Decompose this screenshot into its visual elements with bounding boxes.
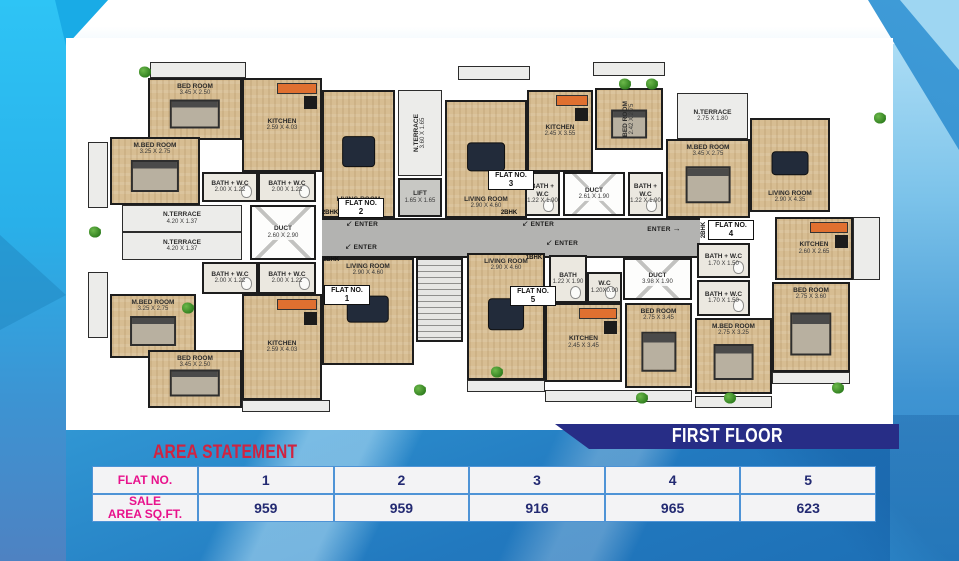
room-dims: 1.70 X 1.50	[708, 261, 739, 268]
room-name: BATH + W.C	[211, 271, 248, 278]
bhk-tag: 2BHK	[501, 210, 517, 216]
room-label: LIVING ROOM2.90 X 4.60	[324, 260, 412, 363]
enter-arrow-icon: ↙	[522, 220, 529, 228]
room-dims: 3.45 X 2.50	[180, 362, 211, 369]
room-duct: DUCT3.98 X 1.90	[623, 258, 692, 300]
room-name: KITCHEN	[546, 124, 575, 131]
room-name: BATH + W.C	[705, 253, 742, 260]
enter-text: ENTER	[647, 226, 671, 233]
room-n-terrace: N.TERRACE2.75 X 1.80	[677, 93, 748, 139]
flat-tag-number: 3	[489, 180, 533, 189]
room-dims: 2.42 X 2.75	[629, 104, 636, 135]
room-label: BATH + W.C1.70 X 1.50	[699, 282, 748, 314]
bhk-tag: 1BHK	[526, 255, 542, 261]
table-cell: 916	[469, 494, 605, 522]
page: BED ROOM3.45 X 2.50M.BED ROOM3.25 X 2.75…	[0, 0, 959, 561]
room-m-bed-room: M.BED ROOM2.75 X 3.25	[695, 318, 772, 394]
plant-icon	[832, 383, 844, 394]
flat-number-tag: FLAT NO.1	[324, 285, 370, 305]
room-name: W.C	[598, 280, 610, 287]
room-name: BED ROOM	[177, 355, 213, 362]
room-label: BATH + W.C2.00 X 1.22	[204, 264, 256, 292]
room-label: BED ROOM2.75 X 3.45	[627, 305, 690, 386]
room-balcony	[88, 272, 108, 338]
room-dims: 4.20 X 1.37	[167, 246, 198, 253]
enter-arrow-icon: ↙	[546, 239, 553, 247]
room-dims: 2.60 X 2.90	[267, 233, 300, 240]
room-label: DUCT2.61 X 1.90	[565, 174, 623, 214]
room-name: N.TERRACE	[413, 114, 420, 152]
room-dims: 3.25 X 2.75	[140, 149, 171, 156]
bhk-tag: 2BHK	[322, 210, 338, 216]
room-bath-w-c: BATH + W.C1.70 X 1.50	[697, 280, 750, 316]
bhk-tag: 2BHK	[323, 257, 339, 263]
room-bath-w-c: BATH + W.C2.00 X 1.22	[202, 172, 258, 202]
room-label: BED ROOM2.75 X 3.60	[774, 284, 848, 370]
room-dims: 2.75 X 3.45	[643, 315, 674, 322]
room-dims: 2.90 X 4.35	[775, 197, 806, 204]
flat-tag-number: 4	[709, 230, 753, 239]
enter-text: ENTER	[555, 240, 579, 247]
flat-number-tag: FLAT NO.4	[708, 220, 754, 240]
room-dims: 2.00 X 1.22	[215, 278, 246, 285]
room-name: BED ROOM	[622, 101, 629, 137]
floor-title: FIRST FLOOR	[671, 425, 782, 448]
enter-label: ↙ENTER	[522, 220, 554, 228]
enter-text: ENTER	[354, 244, 378, 251]
room-label: BATH1.22 X 1.90	[551, 257, 585, 301]
room-label: M.BED ROOM2.75 X 3.25	[697, 320, 770, 392]
room-living-room: LIVING ROOM2.90 X 4.60	[322, 258, 414, 365]
table-cell: 2	[334, 466, 470, 494]
room-dims: 2.59 X 4.03	[267, 347, 298, 354]
room-name: LIVING ROOM	[346, 263, 390, 270]
room-lift: LIFT1.65 X 1.65	[398, 178, 442, 217]
room-label: N.TERRACE4.20 X 1.37	[123, 233, 241, 259]
plant-icon	[414, 385, 426, 396]
room-n-terrace: N.TERRACE3.60 X 1.65	[398, 90, 442, 176]
plant-icon	[491, 367, 503, 378]
room-dims: 2.90 X 4.60	[491, 265, 522, 272]
room-duct: DUCT2.60 X 2.90	[250, 205, 316, 260]
room-name: LIFT	[413, 190, 427, 197]
room-balcony	[593, 62, 665, 76]
table-row-header: SALE AREA SQ.FT.	[92, 494, 198, 522]
plant-icon	[139, 67, 151, 78]
table-cell: 1	[198, 466, 334, 494]
plant-icon	[89, 227, 101, 238]
room-dims: 1.65 X 1.65	[405, 198, 436, 205]
room-kitchen: KITCHEN2.45 X 3.55	[527, 90, 593, 172]
flat-tag-number: 1	[325, 295, 369, 304]
room-bed-room: BED ROOM2.75 X 3.45	[625, 303, 692, 388]
room-m-bed-room: M.BED ROOM3.45 X 2.75	[666, 139, 750, 218]
plant-icon	[619, 79, 631, 90]
room-label: KITCHEN2.59 X 4.03	[244, 80, 320, 170]
room-dims: 3.45 X 2.75	[693, 151, 724, 158]
enter-label: ↙ENTER	[546, 239, 578, 247]
room-label: LIVING ROOM2.90 X 4.60	[469, 255, 543, 378]
room-name: BATH	[559, 272, 577, 279]
room-label: LIFT1.65 X 1.65	[400, 180, 440, 215]
room-dims: 2.75 X 1.80	[697, 116, 728, 123]
room-label: BED ROOM3.45 X 2.50	[150, 352, 240, 406]
room-balcony	[545, 390, 692, 402]
room-n-terrace: N.TERRACE4.20 X 1.37	[122, 232, 242, 260]
room-balcony	[467, 380, 545, 392]
table-cell: 4	[605, 466, 741, 494]
enter-text: ENTER	[355, 221, 379, 228]
room-dims: 2.75 X 3.25	[718, 330, 749, 337]
plant-icon	[636, 393, 648, 404]
room-living-room: LIVING ROOM2.90 X 4.35	[750, 118, 830, 212]
flat-number-tag: FLAT NO.3	[488, 170, 534, 190]
room-bed-room: BED ROOM2.75 X 3.60	[772, 282, 850, 372]
room-name: KITCHEN	[800, 241, 829, 248]
room-label: BATH + W.C1.70 X 1.50	[699, 245, 748, 276]
room-dims: 1.20X0.90	[591, 288, 618, 295]
room-name: M.BED ROOM	[132, 299, 175, 306]
table-cell: 3	[469, 466, 605, 494]
room-dims: 2.75 X 3.60	[796, 294, 827, 301]
room-name: M.BED ROOM	[687, 144, 730, 151]
room-name: LIVING ROOM	[464, 196, 508, 203]
room-label: LIVING ROOM2.90 X 4.35	[752, 120, 828, 210]
room-label: DUCT2.60 X 2.90	[252, 207, 314, 258]
room-name: BATH + W.C	[268, 271, 305, 278]
table-cell: 5	[740, 466, 876, 494]
enter-arrow-icon: ↙	[345, 243, 352, 251]
room-balcony	[416, 258, 463, 342]
table-row-header: FLAT NO.	[92, 466, 198, 494]
plant-icon	[724, 393, 736, 404]
room-dims: 2.90 X 4.60	[353, 270, 384, 277]
room-label: BED ROOM3.45 X 2.50	[150, 80, 240, 138]
area-table: FLAT NO.12345SALE AREA SQ.FT.95995991696…	[92, 466, 876, 522]
room-name: DUCT	[273, 225, 293, 232]
room-bed-room: BED ROOM2.42 X 2.75	[595, 88, 663, 150]
room-dims: 1.22 X 1.90	[553, 279, 584, 286]
room-label: DUCT3.98 X 1.90	[625, 260, 690, 298]
room-label: KITCHEN2.45 X 3.55	[529, 92, 591, 170]
room-bath-w-c: BATH + W.C2.00 X 1.22	[258, 172, 316, 202]
room-name: KITCHEN	[268, 340, 297, 347]
room-label: BATH + W.C1.22 X 1.90	[630, 174, 661, 214]
room-name: KITCHEN	[569, 335, 598, 342]
room-label: M.BED ROOM3.25 X 2.75	[112, 139, 198, 203]
bhk-tag: 2BHK	[701, 222, 707, 238]
room-label: BED ROOM2.42 X 2.75	[600, 87, 658, 151]
room-name: BATH + W.C	[211, 180, 248, 187]
room-label: KITCHEN2.60 X 2.65	[777, 219, 851, 278]
room-living-room: LIVING ROOM2.90 X 4.60	[445, 100, 527, 218]
room-dims: 2.60 X 2.65	[799, 249, 830, 256]
room-label: BATH + W.C2.00 X 1.22	[260, 264, 314, 292]
room-label: W.C1.20X0.90	[589, 274, 620, 301]
room-name: N.TERRACE	[163, 211, 201, 218]
flat-tag-number: 5	[511, 296, 555, 305]
enter-label: ↙ENTER	[345, 243, 377, 251]
area-statement-title: AREA STATEMENT	[153, 442, 297, 464]
table-cell: 959	[198, 494, 334, 522]
room-living-room: LIVING ROOM2.90 X 4.60	[467, 253, 545, 380]
room-name: DUCT	[584, 187, 604, 194]
room-dims: 2.61 X 1.90	[578, 194, 611, 201]
table-cell: 965	[605, 494, 741, 522]
room-name: LIVING ROOM	[484, 258, 528, 265]
room-dims: 3.25 X 2.75	[138, 306, 169, 313]
floor-plan: BED ROOM3.45 X 2.50M.BED ROOM3.25 X 2.75…	[88, 58, 900, 426]
room-label: BATH + W.C2.00 X 1.22	[260, 174, 314, 200]
room-name: BED ROOM	[177, 83, 213, 90]
room-dims: 1.70 X 1.50	[708, 298, 739, 305]
room-dims: 3.45 X 2.50	[180, 90, 211, 97]
enter-arrow-icon: ↙	[346, 220, 353, 228]
room-bath-w-c: BATH + W.C2.00 X 1.22	[202, 262, 258, 294]
room-name: BATH + W.C	[268, 180, 305, 187]
room-dims: 2.00 X 1.22	[215, 187, 246, 194]
room-name: M.BED ROOM	[134, 142, 177, 149]
room-name: LIVING ROOM	[768, 190, 812, 197]
plant-icon	[182, 303, 194, 314]
room-bath-w-c: BATH + W.C2.00 X 1.22	[258, 262, 316, 294]
room-balcony	[242, 400, 330, 412]
room-dims: 1.22 X 1.90	[630, 198, 661, 205]
room-label: M.BED ROOM3.45 X 2.75	[668, 141, 748, 216]
room-dims: 2.45 X 3.45	[568, 343, 599, 350]
room-kitchen: KITCHEN2.59 X 4.03	[242, 294, 322, 400]
room-balcony	[853, 217, 880, 280]
room-dims: 2.00 X 1.22	[272, 187, 303, 194]
table-cell: 623	[740, 494, 876, 522]
room-w-c: W.C1.20X0.90	[587, 272, 622, 303]
room-label: BATH + W.C2.00 X 1.22	[204, 174, 256, 200]
room-bath-w-c: BATH + W.C1.22 X 1.90	[628, 172, 663, 216]
room-name: N.TERRACE	[163, 239, 201, 246]
room-name: KITCHEN	[268, 118, 297, 125]
room-label: N.TERRACE2.75 X 1.80	[678, 94, 747, 138]
room-dims: 2.00 X 1.22	[272, 278, 303, 285]
enter-label: ↙ENTER	[346, 220, 378, 228]
room-label: LIVING ROOM2.90 X 4.60	[447, 102, 525, 216]
first-floor-banner: FIRST FLOOR	[555, 424, 899, 449]
room-kitchen: KITCHEN2.45 X 3.45	[545, 303, 622, 382]
room-name: BATH + W.C	[630, 183, 661, 198]
room-dims: 2.45 X 3.55	[545, 131, 576, 138]
room-dims: 1.22 X 1.90	[527, 198, 558, 205]
room-dims: 4.20 X 1.37	[167, 219, 198, 226]
room-dims: 3.98 X 1.90	[641, 279, 674, 286]
flat-tag-number: 2	[339, 208, 383, 217]
room-balcony	[322, 218, 700, 258]
enter-text: ENTER	[531, 221, 555, 228]
table-cell: 959	[334, 494, 470, 522]
room-kitchen: KITCHEN2.60 X 2.65	[775, 217, 853, 280]
room-dims: 2.90 X 4.60	[471, 203, 502, 210]
room-m-bed-room: M.BED ROOM3.25 X 2.75	[110, 137, 200, 205]
room-balcony	[458, 66, 530, 80]
plant-icon	[646, 79, 658, 90]
room-balcony	[150, 62, 246, 78]
enter-arrow-icon: →	[673, 225, 681, 233]
room-dims: 2.59 X 4.03	[267, 125, 298, 132]
room-balcony	[88, 142, 108, 208]
room-name: BATH + W.C	[705, 291, 742, 298]
room-dims: 3.60 X 1.65	[420, 118, 427, 149]
flat-number-tag: FLAT NO.5	[510, 286, 556, 306]
enter-label: ENTER→	[647, 225, 681, 233]
room-bath-w-c: BATH + W.C1.70 X 1.50	[697, 243, 750, 278]
room-label: N.TERRACE4.20 X 1.37	[123, 206, 241, 231]
room-name: M.BED ROOM	[712, 323, 755, 330]
room-n-terrace: N.TERRACE4.20 X 1.37	[122, 205, 242, 232]
room-kitchen: KITCHEN2.59 X 4.03	[242, 78, 322, 172]
room-name: BED ROOM	[641, 308, 677, 315]
room-bed-room: BED ROOM3.45 X 2.50	[148, 350, 242, 408]
room-duct: DUCT2.61 X 1.90	[563, 172, 625, 216]
room-label: KITCHEN2.45 X 3.45	[547, 305, 620, 380]
room-name: N.TERRACE	[694, 109, 732, 116]
plant-icon	[874, 113, 886, 124]
flat-number-tag: FLAT NO.2	[338, 198, 384, 218]
room-bed-room: BED ROOM3.45 X 2.50	[148, 78, 242, 140]
room-name: BED ROOM	[793, 287, 829, 294]
room-name: DUCT	[647, 272, 667, 279]
room-label: KITCHEN2.59 X 4.03	[244, 296, 320, 398]
